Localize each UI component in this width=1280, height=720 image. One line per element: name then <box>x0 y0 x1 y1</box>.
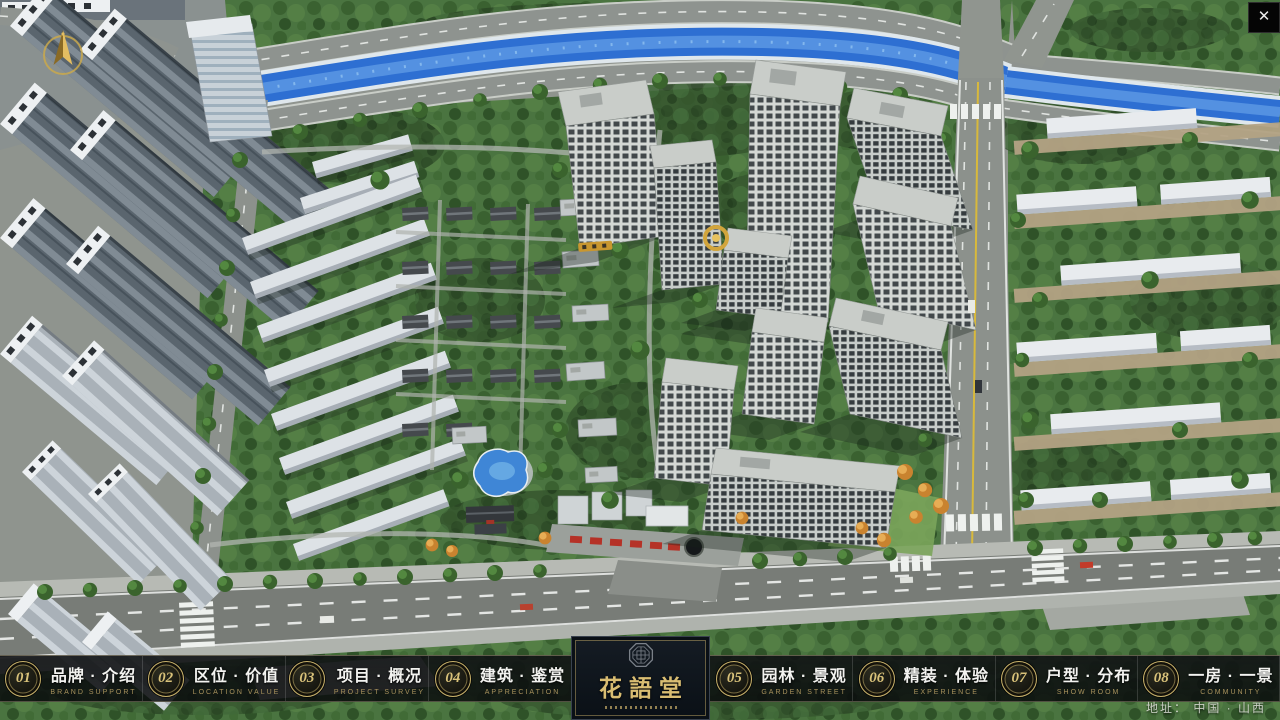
project-address: 地址： 中国 · 山西 <box>1146 699 1266 716</box>
nav-label: 区位 · 价值 LOCATION VALUE <box>193 662 281 696</box>
nav-num: 08 <box>1154 670 1169 687</box>
nav-en-label: SHOW ROOM <box>1057 689 1121 696</box>
nav-item-interior-experience[interactable]: 06 精装 · 体验 EXPERIENCE <box>853 656 995 701</box>
nav-zh-label: 精装 · 体验 <box>904 662 989 686</box>
tower <box>702 448 900 548</box>
medal-icon-08: 08 <box>1143 661 1179 697</box>
nav-num: 04 <box>445 670 460 687</box>
nav-item-garden-landscape[interactable]: 05 园林 · 景观 GARDEN STREET <box>711 656 853 701</box>
medal-icon-02: 02 <box>148 661 184 697</box>
nav-num: 07 <box>1012 670 1027 687</box>
nav-item-project-survey[interactable]: 03 项目 · 概况 PROJECT SURVEY <box>286 656 429 701</box>
medal-icon-04: 04 <box>435 661 471 697</box>
nav-num: 05 <box>727 670 742 687</box>
medal-icon-03: 03 <box>289 661 325 697</box>
nav-item-location-value[interactable]: 02 区位 · 价值 LOCATION VALUE <box>143 656 286 701</box>
nav-zh-label: 户型 · 分布 <box>1046 662 1131 686</box>
nav-label: 园林 · 景观 GARDEN STREET <box>761 662 847 696</box>
nav-en-label: COMMUNITY <box>1200 689 1261 696</box>
nav-label: 建筑 · 鉴赏 APPRECIATION <box>480 662 565 696</box>
nav-label: 品牌 · 介绍 BRAND SUPPORT <box>50 662 136 696</box>
nav-zh-label: 一房 · 一景 <box>1188 662 1273 686</box>
swimming-pool <box>473 449 533 496</box>
nav-num: 06 <box>869 670 884 687</box>
nav-en-label: BRAND SUPPORT <box>50 689 136 696</box>
nav-item-room-view[interactable]: 08 一房 · 一景 COMMUNITY <box>1138 656 1280 701</box>
nav-group-left: 01 品牌 · 介绍 BRAND SUPPORT 02 区位 · 价值 LOCA… <box>0 656 571 701</box>
nav-label: 一房 · 一景 COMMUNITY <box>1188 662 1273 696</box>
nav-item-floorplan-distribution[interactable]: 07 户型 · 分布 SHOW ROOM <box>996 656 1138 701</box>
nav-en-label: GARDEN STREET <box>761 689 847 696</box>
nav-zh-label: 项目 · 概况 <box>337 662 422 686</box>
nav-zh-label: 区位 · 价值 <box>194 662 279 686</box>
nav-zh-label: 建筑 · 鉴赏 <box>480 662 565 686</box>
nav-zh-label: 品牌 · 介绍 <box>51 662 136 686</box>
nav-item-brand-intro[interactable]: 01 品牌 · 介绍 BRAND SUPPORT <box>0 656 143 701</box>
medal-icon-07: 07 <box>1001 661 1037 697</box>
nav-en-label: LOCATION VALUE <box>193 689 281 696</box>
aerial-site-plan-viewport[interactable] <box>0 0 1280 720</box>
nav-num: 01 <box>16 670 31 687</box>
nav-label: 精装 · 体验 EXPERIENCE <box>904 662 989 696</box>
nav-group-right: 05 园林 · 景观 GARDEN STREET 06 精装 · 体验 EXPE… <box>711 656 1280 701</box>
project-logo-panel[interactable]: 花語堂 <box>571 636 710 720</box>
octagon-seal-icon <box>628 642 654 668</box>
medal-icon-06: 06 <box>859 661 895 697</box>
logo-caption-rule <box>605 706 677 709</box>
medal-icon-01: 01 <box>5 661 41 697</box>
nav-en-label: EXPERIENCE <box>914 689 979 696</box>
close-icon: ✕ <box>1258 8 1271 25</box>
compass-icon <box>36 24 90 82</box>
nav-num: 03 <box>299 670 314 687</box>
project-logo-title: 花語堂 <box>592 669 689 703</box>
nav-label: 户型 · 分布 SHOW ROOM <box>1046 662 1131 696</box>
close-button[interactable]: ✕ <box>1248 2 1280 33</box>
nav-zh-label: 园林 · 景观 <box>762 662 847 686</box>
nav-en-label: PROJECT SURVEY <box>334 689 425 696</box>
nav-num: 02 <box>158 670 173 687</box>
tower <box>650 140 724 290</box>
nav-label: 项目 · 概况 PROJECT SURVEY <box>334 662 425 696</box>
nav-item-architecture[interactable]: 04 建筑 · 鉴赏 APPRECIATION <box>429 656 571 701</box>
medal-icon-05: 05 <box>716 661 752 697</box>
nav-en-label: APPRECIATION <box>485 689 561 696</box>
presentation-window: ✕ 01 品牌 · 介绍 BRAND SUPPORT 02 区位 · 价值 LO… <box>0 0 1280 720</box>
tower <box>742 308 828 424</box>
